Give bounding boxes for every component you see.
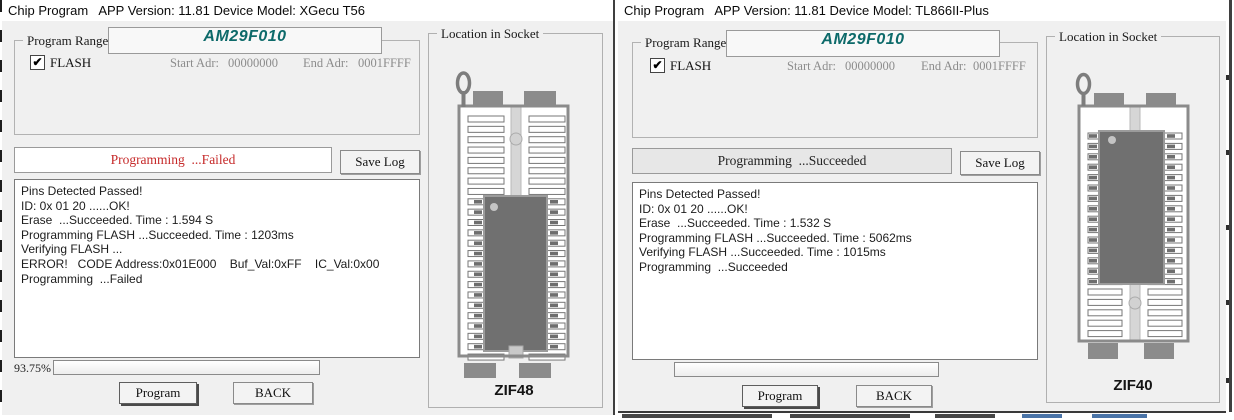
status-bar: Programming ...Failed: [14, 147, 332, 173]
svg-text:ZIF48: ZIF48: [494, 382, 533, 399]
status-text: Programming ...Failed: [111, 152, 236, 167]
start-adr-label: Start Adr:: [170, 56, 219, 71]
background-window-edge: [1229, 0, 1232, 412]
flash-checkbox[interactable]: ✔: [650, 58, 665, 73]
status-bar: Programming ...Succeeded: [632, 148, 952, 174]
program-range-label: Program Range: [641, 35, 730, 51]
flash-label: FLASH: [50, 55, 91, 71]
start-adr-label: Start Adr:: [787, 59, 836, 74]
progress-bar: [674, 362, 939, 377]
end-adr-value: 0001FFFF: [358, 56, 411, 71]
back-button[interactable]: BACK: [856, 385, 932, 407]
save-log-button[interactable]: Save Log: [340, 150, 420, 174]
flash-checkbox[interactable]: ✔: [30, 55, 45, 70]
clipped-background-text: [1022, 414, 1062, 418]
end-adr-value: 0001FFFF: [973, 59, 1026, 74]
log-output[interactable]: Pins Detected Passed!ID: 0x 01 20 ......…: [14, 179, 420, 358]
end-adr-label: End Adr:: [303, 56, 348, 71]
back-button[interactable]: BACK: [233, 382, 313, 404]
end-adr-label: End Adr:: [921, 59, 966, 74]
status-text: Programming ...Succeeded: [718, 153, 867, 168]
chip-name-banner: AM29F010: [726, 30, 1000, 57]
clipped-background-text: [935, 414, 995, 418]
program-button[interactable]: Program: [119, 382, 197, 404]
chip-name-banner: AM29F010: [108, 27, 382, 54]
svg-text:ZIF40: ZIF40: [1113, 377, 1152, 394]
window-left-edge: [0, 0, 2, 414]
log-output[interactable]: Pins Detected Passed!ID: 0x 01 20 ......…: [632, 182, 1038, 360]
checkmark-icon: ✔: [32, 55, 42, 69]
screenshot-stage: Chip Program APP Version: 11.81 Device M…: [0, 0, 1234, 420]
location-in-socket-group: Location in Socket ZIF48: [428, 33, 603, 408]
progress-bar: [53, 360, 320, 375]
window-title: Chip Program APP Version: 11.81 Device M…: [624, 3, 989, 18]
start-adr-value: 00000000: [845, 59, 895, 74]
window-title: Chip Program APP Version: 11.81 Device M…: [8, 3, 365, 18]
program-range-label: Program Range: [23, 33, 112, 49]
checkmark-icon: ✔: [652, 58, 662, 72]
clipped-background-text: [790, 414, 910, 418]
program-button[interactable]: Program: [742, 385, 818, 407]
flash-label: FLASH: [670, 58, 711, 74]
clipped-background-text: [622, 414, 772, 418]
start-adr-value: 00000000: [228, 56, 278, 71]
zif-socket-graphic: ZIF48: [429, 34, 602, 407]
clipped-background-text: [1092, 414, 1147, 418]
zif-socket-graphic: ZIF40: [1047, 37, 1219, 402]
chip-program-window-tl866: Chip Program APP Version: 11.81 Device M…: [618, 0, 1226, 413]
location-in-socket-group: Location in Socket ZIF40: [1046, 36, 1220, 403]
progress-percent: 93.75%: [14, 361, 51, 376]
chip-program-window-t56: Chip Program APP Version: 11.81 Device M…: [2, 0, 615, 415]
save-log-button[interactable]: Save Log: [960, 151, 1040, 175]
